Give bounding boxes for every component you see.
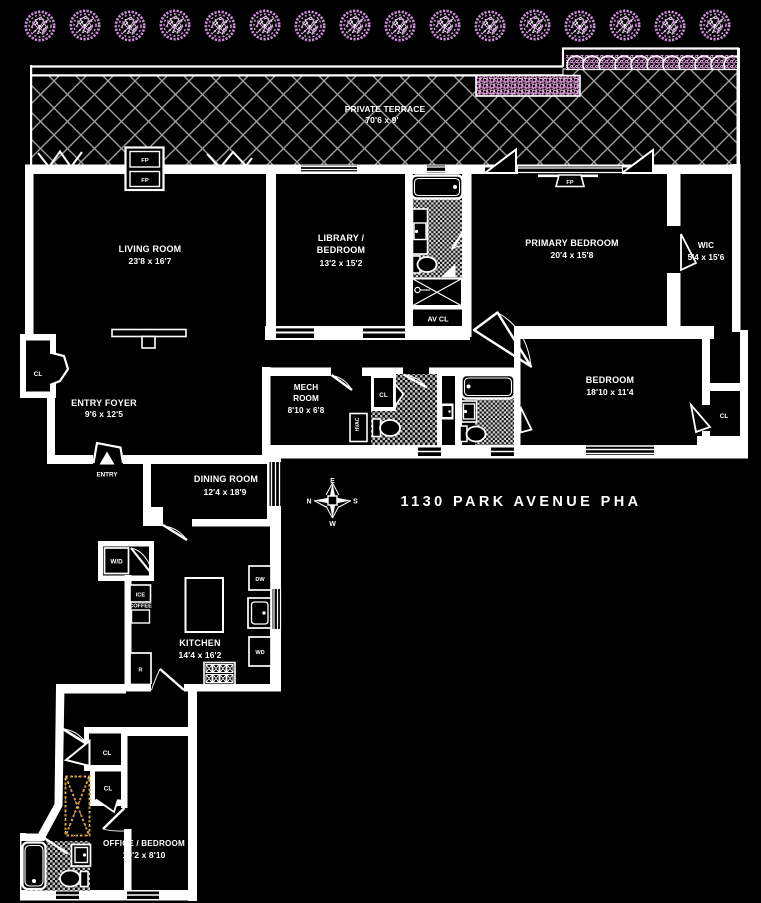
svg-text:20'4 x 15'8: 20'4 x 15'8: [551, 250, 594, 260]
svg-text:12'4 x 18'9: 12'4 x 18'9: [204, 487, 247, 497]
svg-text:WD: WD: [255, 650, 264, 656]
svg-text:W: W: [329, 521, 336, 528]
svg-text:E: E: [330, 478, 335, 485]
svg-text:9'6 x 12'5: 9'6 x 12'5: [85, 409, 123, 419]
svg-text:W/D: W/D: [110, 559, 123, 566]
svg-text:13'2 x 15'2: 13'2 x 15'2: [320, 258, 363, 268]
svg-text:18'10 x 11'4: 18'10 x 11'4: [586, 387, 633, 397]
svg-text:ENTRY: ENTRY: [96, 472, 118, 479]
svg-text:CL: CL: [104, 786, 113, 793]
svg-text:CL: CL: [103, 750, 112, 757]
svg-text:AV CL: AV CL: [427, 315, 449, 324]
svg-text:8'10 x 6'8: 8'10 x 6'8: [288, 406, 325, 415]
svg-text:5'4 x 15'6: 5'4 x 15'6: [688, 253, 725, 262]
svg-text:PRIVATE TERRACE: PRIVATE TERRACE: [345, 104, 426, 114]
svg-text:LIBRARY /: LIBRARY /: [318, 233, 365, 243]
svg-text:FP: FP: [141, 178, 149, 184]
svg-text:MECH: MECH: [294, 383, 319, 392]
svg-text:CL: CL: [34, 371, 43, 378]
svg-text:10'2 x 8'10: 10'2 x 8'10: [123, 850, 166, 860]
svg-text:WIC: WIC: [698, 241, 714, 250]
svg-text:HVAC: HVAC: [355, 417, 361, 431]
svg-text:ICE: ICE: [136, 593, 146, 599]
svg-text:FP: FP: [566, 180, 573, 186]
svg-text:S: S: [353, 499, 358, 506]
svg-text:DW: DW: [255, 577, 265, 583]
svg-text:BEDROOM: BEDROOM: [586, 375, 634, 385]
svg-text:ENTRY FOYER: ENTRY FOYER: [71, 398, 137, 408]
svg-text:LIVING ROOM: LIVING ROOM: [119, 244, 182, 254]
svg-text:N: N: [306, 499, 311, 506]
svg-text:23'8 x 16'7: 23'8 x 16'7: [129, 256, 172, 266]
svg-text:14'4 x 16'2: 14'4 x 16'2: [179, 650, 222, 660]
svg-text:KITCHEN: KITCHEN: [179, 638, 220, 648]
svg-text:BEDROOM: BEDROOM: [317, 245, 365, 255]
svg-text:PRIMARY BEDROOM: PRIMARY BEDROOM: [525, 238, 619, 248]
svg-text:70'6 x 9': 70'6 x 9': [365, 115, 398, 125]
svg-text:ROOM: ROOM: [293, 394, 319, 403]
svg-text:R: R: [138, 668, 142, 674]
svg-text:CL: CL: [379, 392, 388, 399]
svg-text:OFFICE / BEDROOM: OFFICE / BEDROOM: [103, 838, 185, 848]
svg-text:CL: CL: [720, 413, 729, 420]
svg-text:COFFEE: COFFEE: [129, 604, 152, 610]
svg-text:1130 PARK AVENUE PHA: 1130 PARK AVENUE PHA: [401, 494, 642, 510]
svg-text:DINING ROOM: DINING ROOM: [194, 474, 258, 484]
svg-text:FP: FP: [141, 158, 149, 164]
